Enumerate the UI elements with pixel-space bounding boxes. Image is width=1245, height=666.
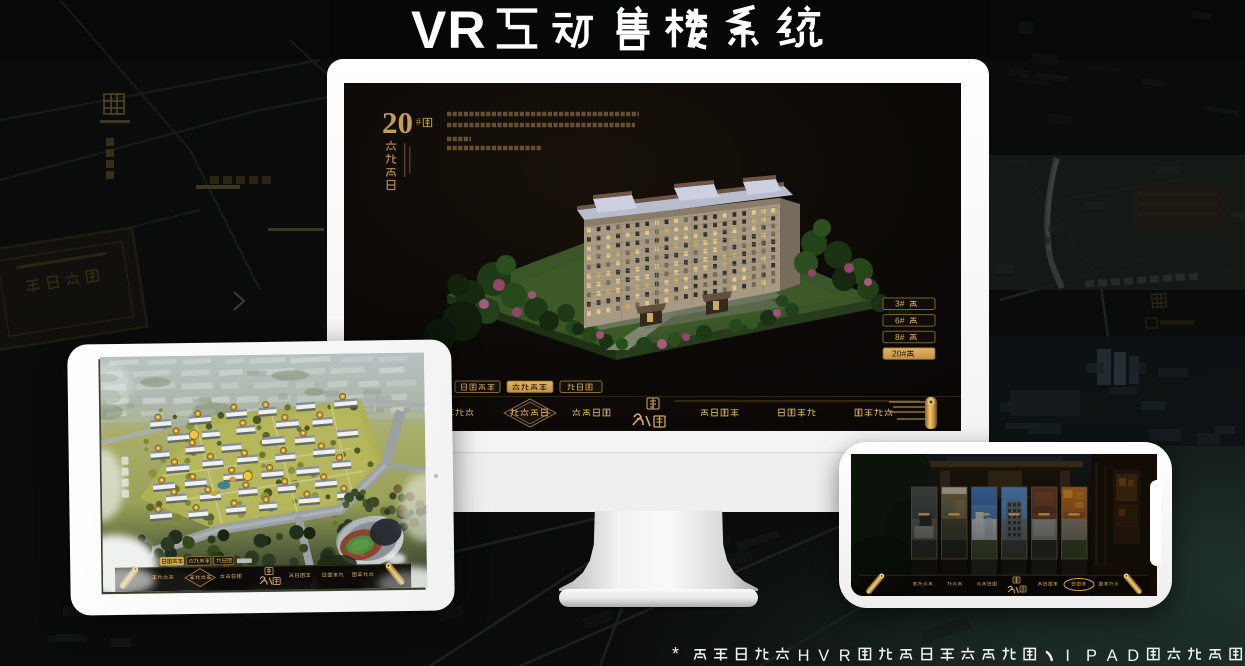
svg-text:H: H bbox=[798, 647, 810, 665]
svg-text:VR: VR bbox=[411, 2, 487, 56]
svg-text:*: * bbox=[672, 644, 679, 664]
svg-text:P: P bbox=[1086, 647, 1097, 665]
svg-text:R: R bbox=[839, 647, 851, 665]
svg-text:D: D bbox=[1127, 647, 1139, 665]
svg-text:3#: 3# bbox=[895, 299, 905, 309]
svg-text:20: 20 bbox=[382, 105, 413, 140]
svg-text:#: # bbox=[416, 117, 421, 128]
svg-text:A: A bbox=[1107, 647, 1118, 665]
svg-text:6#: 6# bbox=[895, 315, 905, 325]
svg-text:8#: 8# bbox=[895, 332, 905, 342]
svg-text:I: I bbox=[1065, 647, 1070, 665]
svg-text:20#: 20# bbox=[892, 349, 906, 359]
svg-text:V: V bbox=[818, 647, 829, 665]
